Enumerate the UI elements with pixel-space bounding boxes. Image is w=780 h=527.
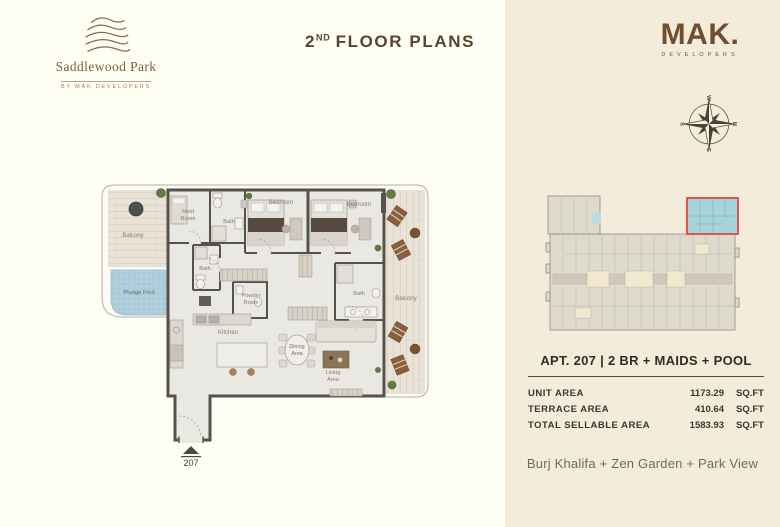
title-ordinal: ND xyxy=(316,32,331,42)
room-label-living-1: Living xyxy=(326,370,341,376)
brochure-page: Saddlewood Park BY MAK DEVELOPERS 2NDFLO… xyxy=(0,0,780,527)
total-sellable-area-value: 1583.93 xyxy=(672,420,724,431)
room-label-living-2: Area xyxy=(327,377,340,383)
compass-s: S xyxy=(680,122,684,126)
room-label-bath-mid: Bath xyxy=(199,266,211,272)
closet xyxy=(220,269,267,281)
room-label-bath-right: Bath xyxy=(353,291,365,297)
title-number: 2 xyxy=(305,32,316,51)
unit-info-panel: APT. 207 | 2 BR + MAIDS + POOL UNIT AREA… xyxy=(528,353,764,436)
brand-waves-icon xyxy=(77,12,135,58)
unit-area-value: 1173.29 xyxy=(672,388,724,399)
key-plan-terrace-mark xyxy=(592,212,601,224)
console xyxy=(288,307,327,320)
balcony-left-deck xyxy=(108,190,168,267)
unit-area-row: UNIT AREA 1173.29 SQ.FT xyxy=(528,388,764,399)
key-plan xyxy=(535,188,765,333)
room-label-balcony-right: Balcony xyxy=(395,296,416,302)
balcony-table-round xyxy=(129,202,143,216)
total-sellable-area-label: TOTAL SELLABLE AREA xyxy=(528,420,672,431)
views-description: Burj Khalifa + Zen Garden + Park View xyxy=(505,456,780,471)
apartment-title: APT. 207 | 2 BR + MAIDS + POOL xyxy=(528,353,764,368)
terrace-area-unit: SQ.FT xyxy=(724,404,764,415)
total-sellable-area-row: TOTAL SELLABLE AREA 1583.93 SQ.FT xyxy=(528,420,764,431)
unit-area-unit: SQ.FT xyxy=(724,388,764,399)
column xyxy=(381,193,386,213)
developer-logo: MAK. DEVELOPERS xyxy=(640,20,760,58)
terrace-area-row: TERRACE AREA 410.64 SQ.FT xyxy=(528,404,764,415)
room-label-dining-2: Area xyxy=(291,351,302,357)
compass-e: E xyxy=(705,148,711,152)
coffee-table xyxy=(323,351,349,368)
brand-logo: Saddlewood Park BY MAK DEVELOPERS xyxy=(48,12,164,93)
compass-w: W xyxy=(705,95,711,101)
room-label-balcony-left: Balcony xyxy=(122,233,143,239)
sofa xyxy=(316,321,376,342)
compass-n: N xyxy=(731,122,737,126)
unit-area-label: UNIT AREA xyxy=(528,388,672,399)
room-label-maid-1: Maid xyxy=(182,209,194,215)
room-label-maid-2: Room xyxy=(181,216,196,222)
page-title: 2NDFLOOR PLANS xyxy=(280,32,500,52)
brand-tagline: BY MAK DEVELOPERS xyxy=(61,81,151,90)
terrace-area-value: 410.64 xyxy=(672,404,724,415)
compass-rose-icon: N E S W xyxy=(680,94,738,154)
total-sellable-area-unit: SQ.FT xyxy=(724,420,764,431)
brand-name: Saddlewood Park xyxy=(48,59,164,75)
room-label-bedroom-2: Bedroom xyxy=(347,202,371,208)
developer-name: MAK. xyxy=(640,20,760,50)
room-label-kitchen: Kitchen xyxy=(218,330,238,336)
room-label-bath-top: Bath xyxy=(223,219,235,225)
media-console xyxy=(330,389,362,396)
column xyxy=(199,296,211,306)
floor-plan: 207 Balcony Plunge Pool Maid Room Bath B… xyxy=(95,160,443,472)
developer-tagline: DEVELOPERS xyxy=(640,52,760,58)
room-label-powder-1: Powder xyxy=(242,293,261,299)
room-label-plunge-pool: Plunge Pool xyxy=(123,290,154,296)
unit-number-label: 207 xyxy=(183,458,198,468)
room-label-powder-2: Room xyxy=(244,300,259,306)
title-rest: FLOOR PLANS xyxy=(336,32,475,51)
room-label-bedroom-1: Bedroom xyxy=(269,200,293,206)
room-label-dining-1: Dining xyxy=(289,344,304,350)
entry-opening xyxy=(179,437,203,444)
entry-marker: 207 xyxy=(181,446,201,468)
divider-rule xyxy=(528,376,764,377)
terrace-area-label: TERRACE AREA xyxy=(528,404,672,415)
key-plan-highlighted-unit xyxy=(687,198,738,234)
closet xyxy=(299,255,312,277)
